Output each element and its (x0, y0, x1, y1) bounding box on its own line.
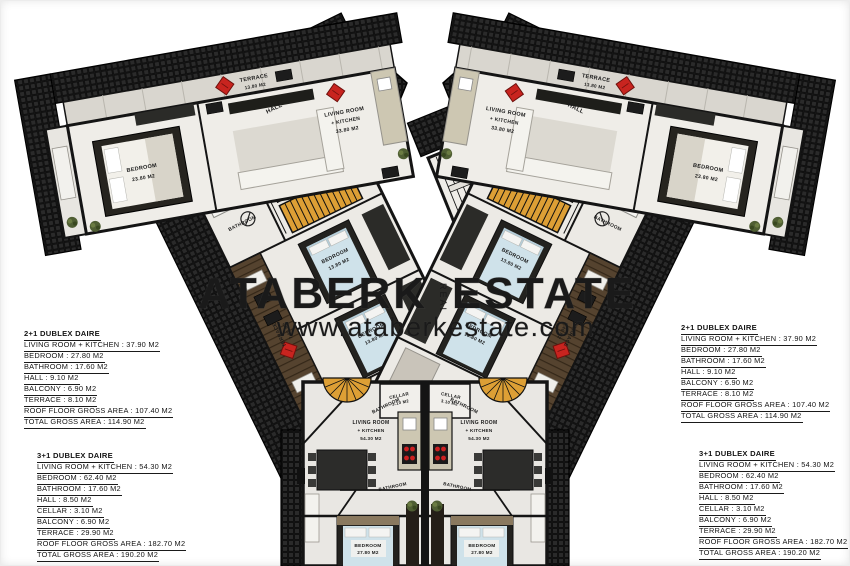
spec-line: LIVING ROOM + KITCHEN : 37.90 M2 (681, 333, 830, 344)
spec-line: BATHROOM : 17.60 M2 (37, 483, 186, 494)
spec-line: TERRACE : 29.90 M2 (699, 525, 848, 536)
spec-line: ROOF FLOOR GROSS AREA : 182.70 M2 (699, 536, 848, 547)
sink (434, 418, 447, 430)
spec-line: BALCONY : 6.90 M2 (24, 383, 173, 394)
spec-line: ROOF FLOOR GROSS AREA : 182.70 M2 (37, 538, 186, 549)
center-divider-wall (421, 382, 429, 566)
sink (403, 418, 416, 430)
spec-line: BALCONY : 6.90 M2 (681, 377, 830, 388)
spec-line: BATHROOM : 17.60 M2 (699, 481, 848, 492)
planter (431, 504, 444, 566)
bedroom-label: BEDROOM (354, 543, 381, 549)
spec-line: TERRACE : 8.10 M2 (681, 388, 830, 399)
spec-line: BATHROOM : 17.60 M2 (24, 361, 173, 372)
spec-line: CELLAR : 3.10 M2 (699, 503, 848, 514)
kitchen-label: + KITCHEN (357, 428, 384, 433)
spec-line: LIVING ROOM + KITCHEN : 54.30 M2 (699, 459, 848, 470)
bottom-block (281, 378, 569, 566)
planter (406, 504, 419, 566)
spec-line: TERRACE : 29.90 M2 (37, 527, 186, 538)
living-area-label: 54.30 M2 (360, 436, 382, 441)
spec-title: 2+1 DUBLEX DAIRE (681, 322, 830, 333)
spec-line: BALCONY : 6.90 M2 (699, 514, 848, 525)
watermark-brand-right: ESTATE (452, 269, 637, 318)
watermark-brand-left: ATABERK (198, 269, 428, 318)
watermark-url: www.ataberkestate.com (276, 312, 595, 342)
spec-title: 3+1 DUBLEX DAIRE (37, 450, 186, 461)
sofa-right (531, 494, 545, 542)
dining-set-left (308, 450, 376, 490)
spec-line: LIVING ROOM + KITCHEN : 54.30 M2 (37, 461, 186, 472)
spec-block-left-bottom: 3+1 DUBLEX DAIRE LIVING ROOM + KITCHEN :… (37, 450, 186, 560)
bottom-roof-band-left (281, 430, 303, 566)
bedroom-area-label: 27.80 M2 (471, 550, 493, 555)
kitchen-label: + KITCHEN (465, 428, 492, 433)
bedroom-area-label: 27.80 M2 (357, 550, 379, 555)
spec-line: CELLAR : 3.10 M2 (37, 505, 186, 516)
living-room-label: LIVING ROOM (353, 420, 390, 426)
floorplan-image: ELEVATOR 4.30 M2 (0, 0, 850, 566)
cooktop-left (402, 444, 417, 464)
spec-line: ROOF FLOOR GROSS AREA : 107.40 M2 (24, 405, 173, 416)
plant-icon (407, 501, 418, 512)
spec-line: ROOF FLOOR GROSS AREA : 107.40 M2 (681, 399, 830, 410)
door-mark (545, 468, 553, 484)
spec-block-left-top: 2+1 DUBLEX DAIRE LIVING ROOM + KITCHEN :… (24, 328, 173, 427)
living-room-label: LIVING ROOM (461, 420, 498, 426)
spec-line: TERRACE : 8.10 M2 (24, 394, 173, 405)
spec-block-right-bottom: 3+1 DUBLEX DAIRE LIVING ROOM + KITCHEN :… (699, 448, 848, 558)
bottom-roof-band-right (547, 430, 569, 566)
spec-block-right-top: 2+1 DUBLEX DAIRE LIVING ROOM + KITCHEN :… (681, 322, 830, 421)
sofa-left (305, 494, 319, 542)
dining-set-right (474, 450, 542, 490)
spec-line: BALCONY : 6.90 M2 (37, 516, 186, 527)
spec-title: 2+1 DUBLEX DAIRE (24, 328, 173, 339)
spec-title: 3+1 DUBLEX DAIRE (699, 448, 848, 459)
living-area-label: 54.30 M2 (468, 436, 490, 441)
cooktop-right (433, 444, 448, 464)
spec-line: LIVING ROOM + KITCHEN : 37.90 M2 (24, 339, 173, 350)
plant-icon (432, 501, 443, 512)
bedroom-label: BEDROOM (468, 543, 495, 549)
door-mark (297, 468, 305, 484)
watermark-real-vertical: REAL (438, 283, 448, 315)
spec-line: BATHROOM : 17.60 M2 (681, 355, 830, 366)
